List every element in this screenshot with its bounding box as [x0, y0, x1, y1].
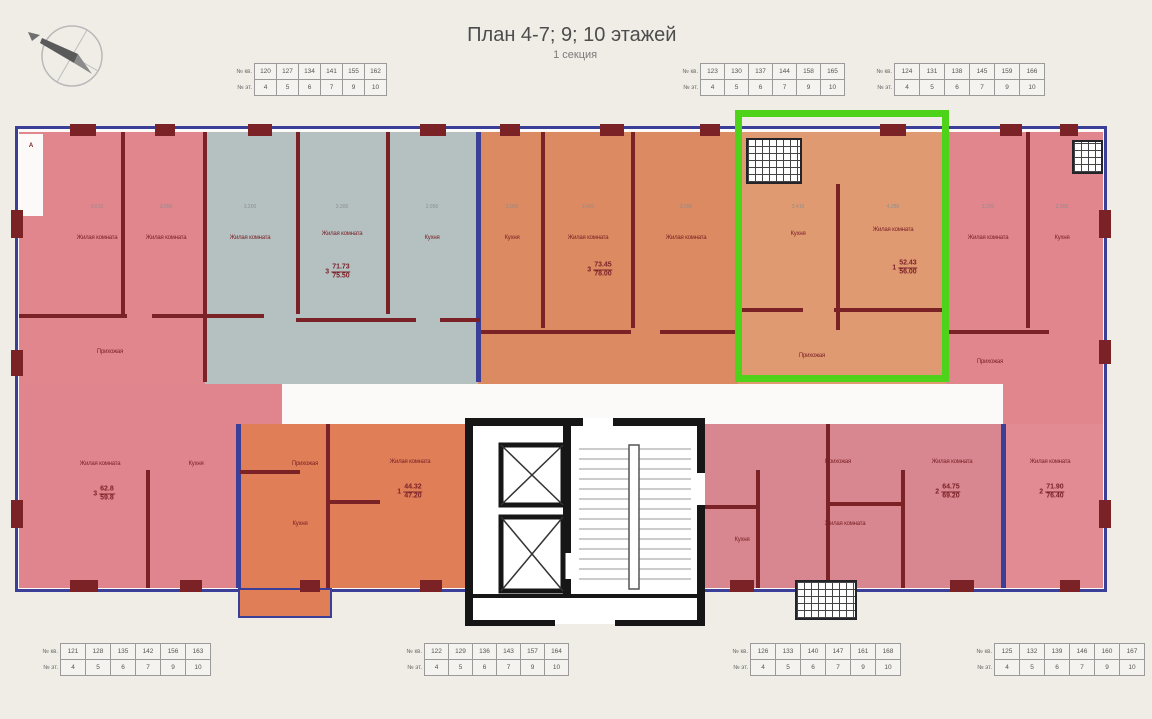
wall-segment	[236, 424, 241, 588]
room-label: Кухня	[504, 235, 519, 241]
table-cell: 10	[1019, 79, 1045, 96]
dimension-label: 3.050	[680, 204, 693, 210]
table-cell: 9	[1094, 659, 1120, 676]
wall-segment	[240, 470, 300, 474]
table-cell: 158	[796, 63, 821, 80]
dimension-label: 3.000	[506, 204, 519, 210]
table-cell: 130	[724, 63, 749, 80]
perimeter-wall-block	[11, 210, 23, 238]
table-cell: 4	[254, 79, 277, 96]
wall-segment	[440, 318, 480, 322]
table-cell: 120	[254, 63, 277, 80]
wall-segment	[660, 330, 736, 334]
wall-segment	[756, 470, 760, 588]
apartment-floor-table: № кв.125132139146160167№ эт.4567910	[962, 644, 1145, 676]
perimeter-wall-block	[70, 124, 96, 136]
table-cell: 7	[1069, 659, 1095, 676]
perimeter-wall-block	[11, 500, 23, 528]
table-cell: 7	[135, 659, 161, 676]
wall-segment	[830, 502, 905, 506]
table-cell: 6	[1044, 659, 1070, 676]
wall-segment	[146, 470, 150, 588]
dimension-label: 3.300	[336, 204, 349, 210]
table-row-label: № эт.	[718, 660, 751, 676]
room-label: Жилая комната	[77, 235, 118, 241]
wall-segment	[901, 470, 905, 588]
wall-segment	[481, 330, 631, 334]
wall-segment	[826, 424, 830, 588]
table-cell: 142	[135, 643, 161, 660]
table-cell: 9	[850, 659, 876, 676]
room-label: Жилая комната	[932, 459, 973, 465]
table-cell: 7	[825, 659, 851, 676]
table-cell: 164	[544, 643, 569, 660]
room-label: Жилая комната	[146, 235, 187, 241]
table-cell: 125	[994, 643, 1020, 660]
wall-segment	[19, 314, 127, 318]
table-cell: 5	[775, 659, 801, 676]
table-cell: 132	[1019, 643, 1045, 660]
table-row-label: № эт.	[28, 660, 61, 676]
dimension-label: 3.200	[982, 204, 995, 210]
wall-segment	[1026, 132, 1030, 328]
table-row-label: № кв.	[718, 644, 751, 660]
apartment-center[interactable]	[478, 132, 738, 384]
table-cell: 144	[772, 63, 797, 80]
page-title: План 4-7; 9; 10 этажей	[467, 24, 676, 47]
apartment-floor-table: № кв.122129136143157164№ эт.4567910	[392, 644, 569, 676]
room-label: Жилая комната	[968, 235, 1009, 241]
table-cell: 5	[724, 79, 749, 96]
perimeter-wall-block	[1060, 124, 1078, 136]
room-label: Прихожая	[97, 349, 123, 355]
table-cell: 4	[60, 659, 86, 676]
table-cell: 6	[748, 79, 773, 96]
table-row-label: № кв.	[392, 644, 425, 660]
table-cell: 127	[276, 63, 299, 80]
table-cell: 4	[700, 79, 725, 96]
wall-segment	[296, 132, 300, 314]
apartment-bottom-left[interactable]	[19, 424, 238, 588]
perimeter-wall-block	[1099, 340, 1111, 364]
perimeter-wall-block	[420, 124, 446, 136]
table-cell: 9	[160, 659, 186, 676]
room-label: Жилая комната	[80, 461, 121, 467]
table-cell: 6	[944, 79, 970, 96]
table-cell: 168	[875, 643, 901, 660]
apartment-area-label: 362.859.8	[93, 486, 115, 503]
perimeter-wall-block	[1099, 210, 1111, 238]
apartment-floor-table: № кв.124131138145159166№ эт.4567910	[862, 64, 1045, 96]
selected-apartment-highlight[interactable]	[735, 110, 949, 382]
table-cell: 162	[364, 63, 387, 80]
table-cell: 155	[342, 63, 365, 80]
perimeter-wall-block	[730, 580, 754, 592]
table-cell: 147	[825, 643, 851, 660]
wall-segment	[330, 500, 380, 504]
table-cell: 10	[544, 659, 569, 676]
perimeter-wall-block	[248, 124, 272, 136]
table-cell: 6	[110, 659, 136, 676]
table-row-label: № эт.	[392, 660, 425, 676]
table-cell: 10	[364, 79, 387, 96]
table-cell: 157	[520, 643, 545, 660]
table-cell: 131	[919, 63, 945, 80]
wall-segment	[476, 132, 481, 382]
table-row-label: № эт.	[668, 80, 701, 96]
perimeter-wall-block	[1000, 124, 1022, 136]
table-cell: 5	[448, 659, 473, 676]
apartment-right-strip	[1003, 384, 1103, 424]
dimension-label: 3.610	[91, 204, 104, 210]
table-cell: 5	[1019, 659, 1045, 676]
table-cell: 122	[424, 643, 449, 660]
perimeter-wall-block	[70, 580, 98, 592]
table-cell: 5	[919, 79, 945, 96]
table-cell: 6	[298, 79, 321, 96]
room-label: Жилая комната	[1030, 459, 1071, 465]
floor-plan-page: План 4-7; 9; 10 этажей 1 секция	[0, 0, 1152, 719]
wall-segment	[152, 314, 264, 318]
apartment-area-label: 144.3247.20	[397, 484, 422, 501]
room-label: Жилая комната	[230, 235, 271, 241]
room-label: Прихожая	[977, 359, 1003, 365]
room-label: Жилая комната	[322, 231, 363, 237]
table-cell: 138	[944, 63, 970, 80]
perimeter-wall-block	[420, 580, 442, 592]
table-cell: 140	[800, 643, 826, 660]
apartment-gray[interactable]	[205, 132, 478, 384]
apartment-bottom-orange[interactable]	[238, 424, 465, 588]
table-cell: 136	[472, 643, 497, 660]
table-cell: 5	[85, 659, 111, 676]
table-row-label: № кв.	[222, 64, 255, 80]
perimeter-wall-block	[1060, 580, 1080, 592]
table-cell: 163	[185, 643, 211, 660]
table-cell: 4	[750, 659, 776, 676]
table-cell: 128	[85, 643, 111, 660]
table-cell: 10	[1119, 659, 1145, 676]
table-cell: 9	[796, 79, 821, 96]
dimension-label: 3.050	[160, 204, 173, 210]
table-cell: 10	[185, 659, 211, 676]
table-cell: 146	[1069, 643, 1095, 660]
section-marker: А	[29, 143, 33, 149]
room-label: Жилая комната	[666, 235, 707, 241]
apartment-area-label: 264.7569.20	[935, 484, 960, 501]
wall-segment	[949, 330, 1049, 334]
room-label: Жилая комната	[390, 459, 431, 465]
table-cell: 9	[520, 659, 545, 676]
table-row-label: № эт.	[862, 80, 895, 96]
compass-icon	[22, 8, 112, 98]
wall-segment	[700, 505, 756, 509]
room-label: Прихожая	[292, 461, 318, 467]
wall-segment	[326, 424, 330, 588]
apartment-floor-table: № кв.120127134141155162№ эт.4567910	[222, 64, 387, 96]
wall-segment	[121, 132, 125, 318]
page-subtitle: 1 секция	[553, 49, 597, 61]
balcony-top-right	[1072, 140, 1103, 174]
table-cell: 166	[1019, 63, 1045, 80]
table-row-label: № кв.	[668, 64, 701, 80]
table-cell: 10	[875, 659, 901, 676]
apartment-left-strip	[19, 384, 282, 424]
table-cell: 4	[894, 79, 920, 96]
room-label: Кухня	[734, 537, 749, 543]
dimension-label: 2.300	[1056, 204, 1069, 210]
room-label: Прихожая	[825, 459, 851, 465]
room-label: Кухня	[1054, 235, 1069, 241]
table-cell: 167	[1119, 643, 1145, 660]
perimeter-wall-block	[1099, 500, 1111, 528]
wall-segment	[386, 132, 390, 314]
room-label: Кухня	[424, 235, 439, 241]
table-cell: 126	[750, 643, 776, 660]
room-label: Жилая комната	[825, 521, 866, 527]
table-cell: 134	[298, 63, 321, 80]
table-cell: 156	[160, 643, 186, 660]
wall-segment	[631, 132, 635, 328]
table-row-label: № кв.	[28, 644, 61, 660]
table-cell: 159	[994, 63, 1020, 80]
perimeter-wall-block	[700, 124, 720, 136]
table-cell: 6	[472, 659, 497, 676]
table-cell: 7	[496, 659, 521, 676]
room-label: Жилая комната	[568, 235, 609, 241]
table-cell: 165	[820, 63, 845, 80]
perimeter-wall-block	[155, 124, 175, 136]
apartment-area-label: 271.9076.40	[1039, 484, 1064, 501]
table-cell: 123	[700, 63, 725, 80]
table-row-label: № кв.	[962, 644, 995, 660]
table-cell: 139	[1044, 643, 1070, 660]
table-row-label: № кв.	[862, 64, 895, 80]
balcony-bottom	[795, 580, 857, 620]
wall-segment	[541, 132, 545, 328]
apartment-floor-table: № кв.123130137144158165№ эт.4567910	[668, 64, 845, 96]
table-cell: 160	[1094, 643, 1120, 660]
room-label: Кухня	[292, 521, 307, 527]
table-row-label: № эт.	[222, 80, 255, 96]
wall-segment	[203, 132, 207, 382]
table-cell: 7	[969, 79, 995, 96]
table-cell: 5	[276, 79, 299, 96]
table-row-label: № эт.	[962, 660, 995, 676]
dimension-label: 3.400	[582, 204, 595, 210]
dimension-label: 2.950	[426, 204, 439, 210]
perimeter-wall-block	[180, 580, 202, 592]
table-cell: 137	[748, 63, 773, 80]
table-cell: 135	[110, 643, 136, 660]
apartment-bump	[238, 588, 332, 618]
perimeter-wall-block	[600, 124, 624, 136]
table-cell: 9	[994, 79, 1020, 96]
apartment-area-label: 373.4578.00	[587, 262, 612, 279]
wall-segment	[296, 318, 416, 322]
apartment-floor-table: № кв.126133140147161168№ эт.4567910	[718, 644, 901, 676]
stair-elevator-core	[463, 413, 707, 635]
room-label: Кухня	[188, 461, 203, 467]
table-cell: 4	[994, 659, 1020, 676]
apartment-bottom-corner[interactable]	[1003, 424, 1103, 588]
wall-segment	[1001, 424, 1006, 588]
table-cell: 4	[424, 659, 449, 676]
dimension-label: 3.200	[244, 204, 257, 210]
perimeter-wall-block	[950, 580, 974, 592]
table-cell: 7	[320, 79, 343, 96]
table-cell: 133	[775, 643, 801, 660]
table-cell: 161	[850, 643, 876, 660]
table-cell: 145	[969, 63, 995, 80]
table-cell: 121	[60, 643, 86, 660]
perimeter-wall-block	[300, 580, 320, 592]
perimeter-wall-block	[11, 350, 23, 376]
perimeter-wall-block	[500, 124, 520, 136]
table-cell: 143	[496, 643, 521, 660]
table-cell: 6	[800, 659, 826, 676]
table-cell: 129	[448, 643, 473, 660]
table-cell: 10	[820, 79, 845, 96]
apartment-area-label: 371.7375.50	[325, 264, 350, 281]
table-cell: 9	[342, 79, 365, 96]
apartment-top-left[interactable]	[19, 132, 205, 384]
table-cell: 7	[772, 79, 797, 96]
table-cell: 124	[894, 63, 920, 80]
apartment-floor-table: № кв.121128135142156163№ эт.4567910	[28, 644, 211, 676]
table-cell: 141	[320, 63, 343, 80]
